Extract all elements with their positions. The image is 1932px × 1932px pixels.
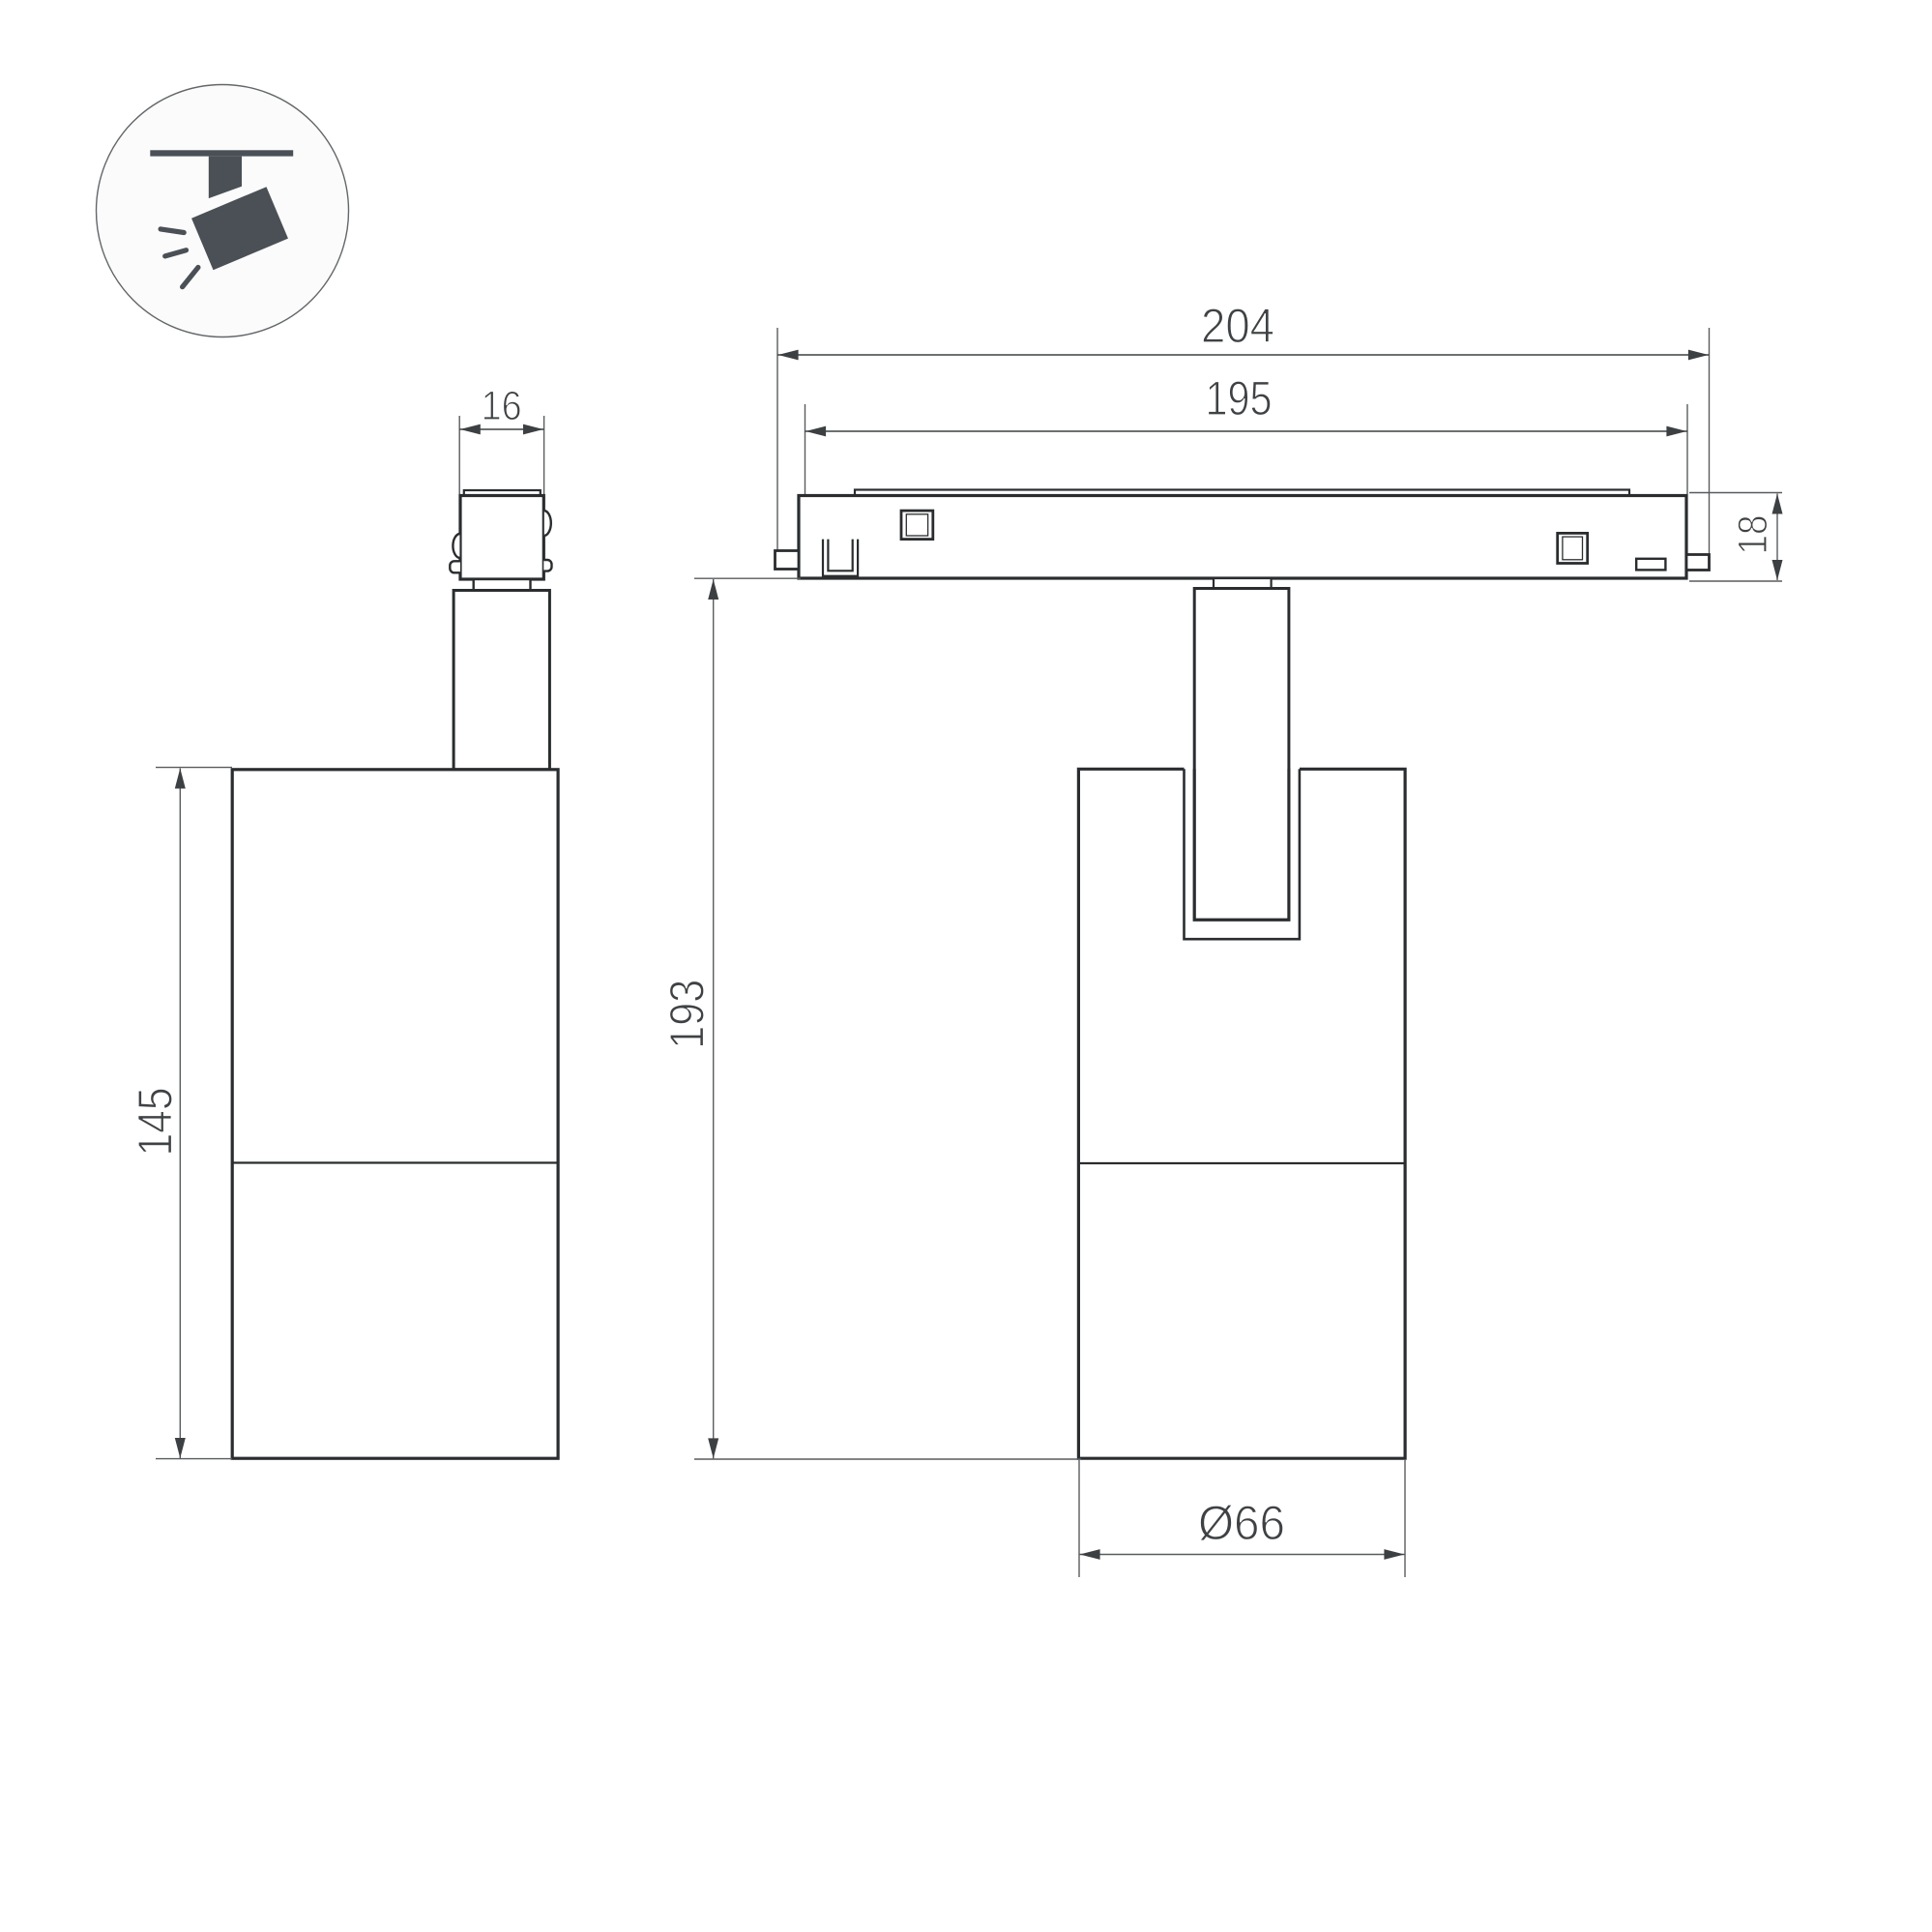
- svg-text:195: 195: [1206, 371, 1273, 425]
- svg-text:Ø66: Ø66: [1198, 1496, 1285, 1550]
- svg-text:18: 18: [1730, 515, 1776, 555]
- svg-text:193: 193: [660, 980, 715, 1049]
- svg-text:145: 145: [128, 1088, 182, 1156]
- svg-text:16: 16: [482, 383, 522, 429]
- svg-text:204: 204: [1201, 299, 1274, 353]
